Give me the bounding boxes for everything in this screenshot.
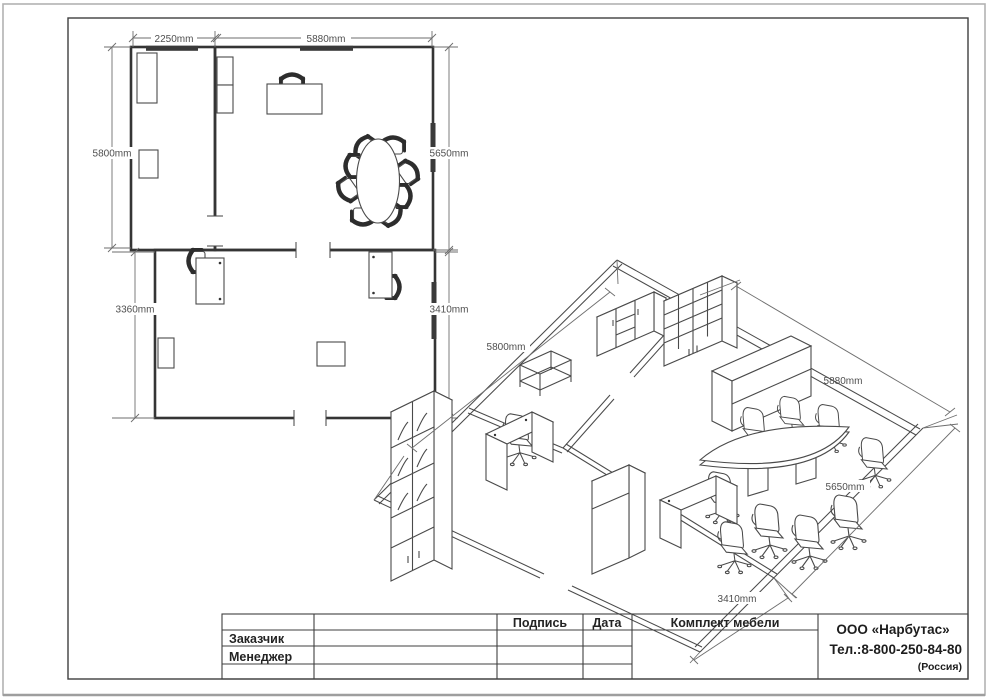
plan-door-openings (207, 216, 330, 426)
dim-label-5800-iso: 5800mm (487, 342, 526, 353)
plan-cabinet-bottom (158, 338, 174, 368)
title-project-name: Комплект мебели (671, 616, 780, 630)
plan-cabinets-left-room (137, 53, 158, 178)
iso-small-desk-chair (718, 522, 751, 574)
plan-office-desks (158, 250, 400, 369)
iso-wardrobes (664, 276, 737, 366)
dim-label-5800-plan: 5800mm (93, 149, 132, 160)
company-name: ООО «Нарбутас» (836, 622, 949, 637)
title-row-manager: Менеджер (229, 650, 292, 664)
iso-tall-cabinet (592, 465, 645, 574)
plan-table-bottom (317, 342, 345, 366)
title-block: Подпись Дата Комплект мебели Заказчик Ме… (222, 614, 968, 679)
drawing-canvas: 2250mm 5880mm 5800mm 5650mm 3360mm 3410m… (0, 0, 988, 700)
floor-plan: 2250mm 5880mm 5800mm 5650mm 3360mm 3410m… (89, 31, 472, 426)
dim-label-2250: 2250mm (155, 34, 194, 45)
plan-cabinets-conference (217, 57, 233, 113)
plan-conference-set (334, 133, 421, 228)
company-country: (Россия) (918, 661, 962, 673)
dim-label-3410-plan: 3410mm (430, 305, 469, 316)
plan-desk-top (267, 84, 322, 114)
iso-view: 5800mm 5880mm 5650mm 3410mm (374, 260, 960, 664)
dim-label-5650-iso: 5650mm (826, 482, 865, 493)
drawing-sheet: 2250mm 5880mm 5800mm 5650mm 3360mm 3410m… (0, 0, 988, 700)
plan-conference-table (357, 139, 400, 223)
iso-conference-table (700, 426, 849, 463)
title-row-customer: Заказчик (229, 632, 285, 646)
dim-label-3410-iso: 3410mm (718, 594, 757, 605)
iso-sideboard (597, 292, 666, 356)
title-col-signature: Подпись (513, 616, 568, 630)
dim-label-5880-plan: 5880mm (307, 34, 346, 45)
iso-bookcase (391, 391, 452, 581)
dim-label-5650-plan: 5650mm (430, 149, 469, 160)
company-phone: Тел.:8-800-250-84-80 (830, 642, 962, 657)
dim-label-3360: 3360mm (116, 305, 155, 316)
title-col-date: Дата (593, 616, 623, 630)
dim-label-5880-iso: 5880mm (824, 376, 863, 387)
title-company-block: ООО «Нарбутас» Тел.:8-800-250-84-80 (Рос… (830, 622, 962, 673)
